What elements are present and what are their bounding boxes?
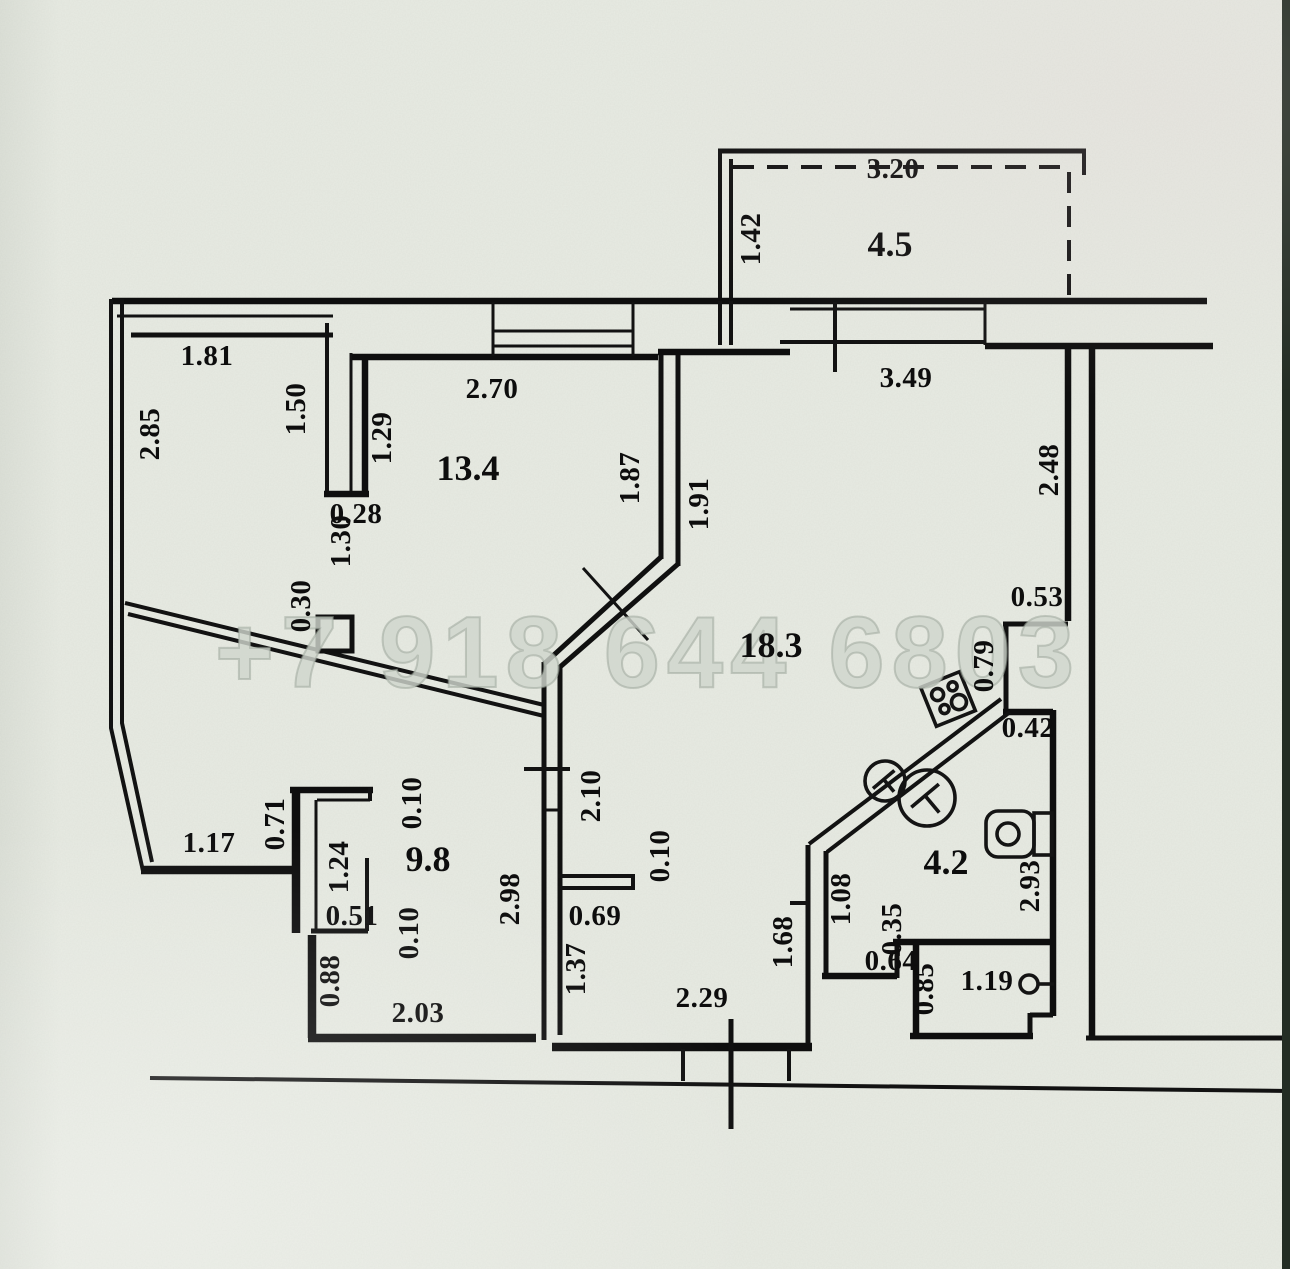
- dimension-label: 0.35: [876, 903, 908, 956]
- dimension-label: 1.42: [735, 213, 767, 266]
- dimension-label: 1.37: [560, 943, 592, 996]
- dimension-label: 0.53: [1011, 581, 1064, 613]
- floor-plan: +7 918 644 6803 3.201.421.812.851.501.29…: [0, 0, 1290, 1269]
- dimension-label: 0.69: [569, 900, 622, 932]
- dimension-label: 2.93: [1014, 860, 1046, 913]
- dimension-label: 2.29: [676, 982, 729, 1014]
- dimension-label: 1.30: [325, 515, 357, 568]
- dimension-label: 0.71: [259, 798, 291, 851]
- scanned-floorplan-page: +7 918 644 6803 3.201.421.812.851.501.29…: [0, 0, 1290, 1269]
- dimension-label: 1.68: [767, 916, 799, 969]
- dimension-label: 0.88: [314, 955, 346, 1008]
- dimension-label: 2.98: [494, 873, 526, 926]
- dimension-label: 1.17: [183, 827, 236, 859]
- watermark-phone: +7 918 644 6803: [215, 597, 1081, 709]
- dimension-label: 3.20: [867, 153, 920, 185]
- dimension-label: 1.19: [961, 965, 1014, 997]
- dimension-label: 0.42: [1002, 712, 1055, 744]
- dimension-label: 1.29: [366, 412, 398, 465]
- dimension-label: 0.10: [396, 777, 428, 830]
- dimension-label: 2.48: [1033, 444, 1065, 497]
- dimension-label: 1.08: [825, 873, 857, 926]
- room-area-label: 13.4: [437, 448, 500, 488]
- dimension-label: 0.10: [393, 907, 425, 960]
- dimension-label: 1.91: [683, 478, 715, 531]
- dimension-label: 2.03: [392, 997, 445, 1029]
- dimension-label: 1.24: [323, 841, 355, 894]
- dimension-label: 0.79: [968, 640, 1000, 693]
- dimension-label: 2.70: [466, 373, 519, 405]
- scan-edge-strip: [1282, 0, 1290, 1269]
- dimension-label: 1.87: [614, 452, 646, 505]
- dimension-label: 2.85: [134, 408, 166, 461]
- room-area-label: 9.8: [406, 839, 451, 879]
- dimension-label: 0.10: [644, 830, 676, 883]
- room-area-label: 18.3: [740, 625, 803, 665]
- dimension-label: 0.30: [285, 580, 317, 633]
- dimension-label: 2.10: [575, 770, 607, 823]
- room-area-label: 4.5: [868, 224, 913, 264]
- dimension-label: 3.49: [880, 362, 933, 394]
- room-area-label: 4.2: [924, 842, 969, 882]
- dimension-label: 0.51: [326, 900, 379, 932]
- dimension-label: 1.81: [181, 340, 234, 372]
- dimension-label: 1.50: [280, 383, 312, 436]
- dimension-label: 0.85: [908, 963, 940, 1016]
